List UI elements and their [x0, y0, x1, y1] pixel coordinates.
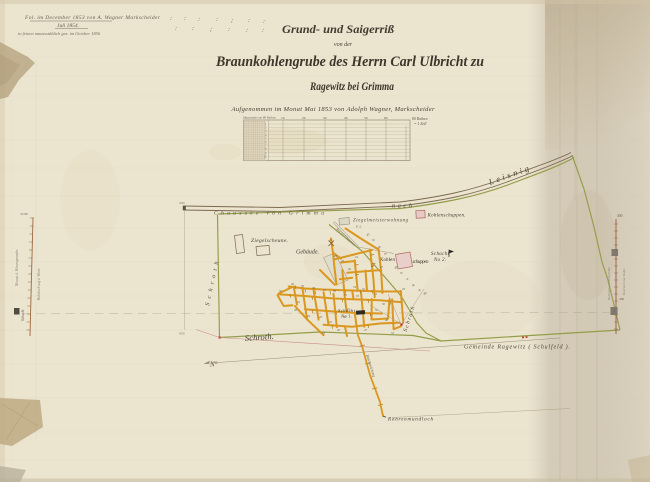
svg-text:Bohrloch auf dem Felde: Bohrloch auf dem Felde	[607, 267, 611, 300]
svg-text:4550: 4550	[179, 333, 185, 336]
svg-text:50: 50	[364, 116, 368, 120]
svg-text:No 2.: No 2.	[433, 258, 446, 263]
svg-text:40: 40	[344, 116, 348, 120]
svg-text:Ragewitz bei Grimma: Ragewitz bei Grimma	[309, 81, 394, 93]
svg-text:schuppen: schuppen	[413, 260, 430, 265]
svg-text:Schacht: Schacht	[21, 309, 25, 321]
svg-text:Braunkohlengrube des Herrn Car: Braunkohlengrube des Herrn Carl Ulbricht…	[215, 54, 484, 70]
svg-text::: :	[170, 16, 172, 22]
svg-text:N°: N°	[209, 361, 218, 369]
svg-text:Ziegelmeisterwohnung: Ziegelmeisterwohnung	[353, 219, 409, 224]
svg-text:Grund- und Saigerriß: Grund- und Saigerriß	[282, 22, 394, 36]
svg-text::: :	[216, 17, 218, 23]
svg-text:Fol. im December 1853 von A. W: Fol. im December 1853 von A. Wagner Mark…	[24, 15, 161, 21]
svg-text:Kohlenschuppen.: Kohlenschuppen.	[427, 214, 466, 219]
svg-text:Aufgenommen im Monat Mai 1853: Aufgenommen im Monat Mai 1853 von Adolph…	[231, 106, 435, 113]
svg-text:400: 400	[617, 214, 623, 218]
svg-text:Bohrloch zur Kohle: Bohrloch zur Kohle	[622, 268, 626, 295]
svg-text:Maassstab von 80 Ruthen: Maassstab von 80 Ruthen	[242, 116, 276, 120]
svg-text:4549: 4549	[179, 202, 185, 205]
svg-text::: :	[184, 16, 186, 22]
svg-text:Gemeinde Ragewitz ( Schulfeld: Gemeinde Ragewitz ( Schulfeld ).	[464, 344, 570, 351]
svg-text:20: 20	[302, 116, 306, 120]
svg-text::: :	[248, 18, 250, 24]
svg-text:;: ;	[210, 27, 212, 33]
svg-text:Schacht: Schacht	[338, 308, 356, 313]
svg-text:Bohrloch auf d. Wiese: Bohrloch auf d. Wiese	[37, 268, 41, 300]
svg-text::: :	[263, 19, 265, 25]
svg-text::: :	[228, 27, 230, 33]
svg-text:= 1 Zoll: = 1 Zoll	[414, 122, 426, 126]
svg-text:80 Ruthen: 80 Ruthen	[412, 117, 428, 121]
svg-text:in feinen maassstäblich gez. i: in feinen maassstäblich gez. im October …	[18, 31, 101, 36]
svg-text::: :	[175, 26, 177, 32]
svg-text:Ziegelscheune.: Ziegelscheune.	[251, 238, 288, 244]
svg-text:Niveau d. Wiesengrundes: Niveau d. Wiesengrundes	[15, 249, 19, 287]
svg-text:;: ;	[231, 18, 233, 24]
svg-text:Juli 1854.: Juli 1854.	[57, 22, 79, 29]
svg-text:30: 30	[323, 116, 327, 120]
svg-text::: :	[246, 28, 248, 34]
svg-text:10: 10	[281, 116, 285, 120]
svg-text:No 1.: No 1.	[340, 314, 352, 319]
svg-text::: :	[262, 28, 264, 34]
svg-text:von der: von der	[334, 42, 353, 48]
svg-text:Schroth.: Schroth.	[244, 331, 274, 343]
svg-text:Schacht: Schacht	[431, 252, 450, 257]
svg-text:400: 400	[619, 297, 624, 301]
svg-text:F. 2.: F. 2.	[355, 225, 362, 229]
svg-text:60: 60	[384, 116, 388, 120]
svg-text:Röhrenmundloch: Röhrenmundloch	[387, 418, 434, 423]
svg-text::: :	[192, 26, 194, 32]
svg-text::: :	[198, 17, 200, 23]
svg-text:Gebäude.: Gebäude.	[296, 250, 319, 256]
svg-text:Kohlen: Kohlen	[379, 258, 396, 263]
